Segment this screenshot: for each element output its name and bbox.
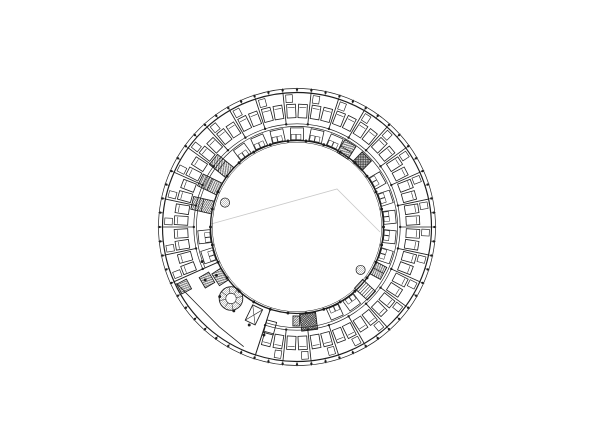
stair-se: [354, 279, 375, 300]
bed: [401, 191, 416, 203]
bed: [287, 104, 296, 118]
round-column-nw: [220, 198, 229, 207]
guest-room: [386, 151, 409, 181]
closet: [286, 95, 293, 103]
guest-room: [404, 202, 428, 225]
bed: [174, 216, 188, 226]
bed: [362, 309, 377, 325]
round-column-se: [356, 265, 365, 274]
closet: [382, 130, 392, 140]
bed: [310, 105, 321, 120]
guest-room: [165, 204, 190, 225]
guest-room: [210, 122, 241, 145]
closet: [165, 218, 173, 225]
closet: [258, 99, 266, 108]
bed: [217, 129, 232, 145]
closet: [173, 270, 182, 279]
guest-room: [173, 251, 197, 278]
bed: [406, 229, 420, 239]
closet: [352, 336, 361, 346]
bed: [175, 204, 190, 215]
closet: [338, 102, 347, 111]
bed: [175, 239, 190, 250]
closet: [274, 350, 282, 358]
guest-room: [168, 179, 196, 202]
closet: [374, 321, 384, 331]
bed: [353, 122, 368, 138]
closet: [399, 151, 409, 161]
closet: [361, 114, 371, 124]
closet: [312, 96, 320, 104]
guest-room: [404, 229, 429, 250]
closet: [168, 191, 177, 199]
closet: [191, 142, 201, 152]
bed: [401, 251, 416, 263]
bed: [174, 229, 188, 239]
shaft-nw-3: [191, 196, 214, 213]
closet: [166, 244, 175, 252]
shaft-s: [293, 316, 300, 326]
elevator-core-ne: [353, 152, 372, 171]
closet: [422, 229, 430, 236]
bed: [273, 334, 284, 349]
bed: [273, 105, 284, 120]
bed: [321, 331, 333, 346]
closet: [301, 351, 308, 359]
bed: [298, 104, 307, 118]
bath-pod: [383, 230, 396, 244]
closet: [233, 108, 242, 118]
guest-room: [166, 229, 190, 252]
bath-pod: [343, 293, 361, 311]
guest-room: [353, 114, 377, 145]
guest-room: [398, 175, 422, 202]
bed: [261, 107, 273, 122]
bed: [207, 137, 223, 153]
bath-pod: [383, 210, 396, 224]
bed: [321, 107, 333, 122]
guest-room: [286, 95, 308, 118]
bed: [379, 146, 395, 161]
guest-room: [353, 309, 384, 332]
bed: [287, 336, 296, 350]
elevator-core-s: [300, 312, 318, 331]
elevator-sw: [245, 305, 262, 325]
guest-room: [287, 336, 309, 359]
bath-pod: [198, 230, 211, 244]
bed: [404, 204, 419, 215]
bed: [199, 146, 215, 161]
closet: [393, 302, 403, 312]
bed: [298, 336, 307, 350]
bed: [177, 251, 192, 263]
guest-room: [310, 96, 332, 123]
closet: [412, 175, 421, 184]
bed: [371, 137, 387, 153]
bath-pod: [291, 128, 304, 140]
closet: [210, 123, 220, 133]
closet: [420, 202, 429, 210]
bed: [177, 191, 192, 203]
bed: [310, 334, 321, 349]
closet: [417, 255, 426, 263]
bath-pod: [233, 143, 251, 161]
bed: [406, 216, 420, 226]
bed: [379, 293, 395, 308]
bed: [371, 301, 387, 317]
bed: [226, 122, 241, 138]
bed: [353, 316, 368, 332]
closet: [407, 280, 417, 289]
bed: [404, 239, 419, 250]
guest-room: [371, 130, 394, 161]
bed: [362, 129, 377, 145]
floor-plan: [0, 0, 600, 423]
closet: [177, 165, 187, 174]
closet: [327, 346, 335, 355]
courtyard-roof-lines: [211, 189, 380, 232]
guest-room: [386, 273, 417, 297]
guest-room: [398, 251, 426, 274]
floor-plan-page: [0, 0, 600, 423]
